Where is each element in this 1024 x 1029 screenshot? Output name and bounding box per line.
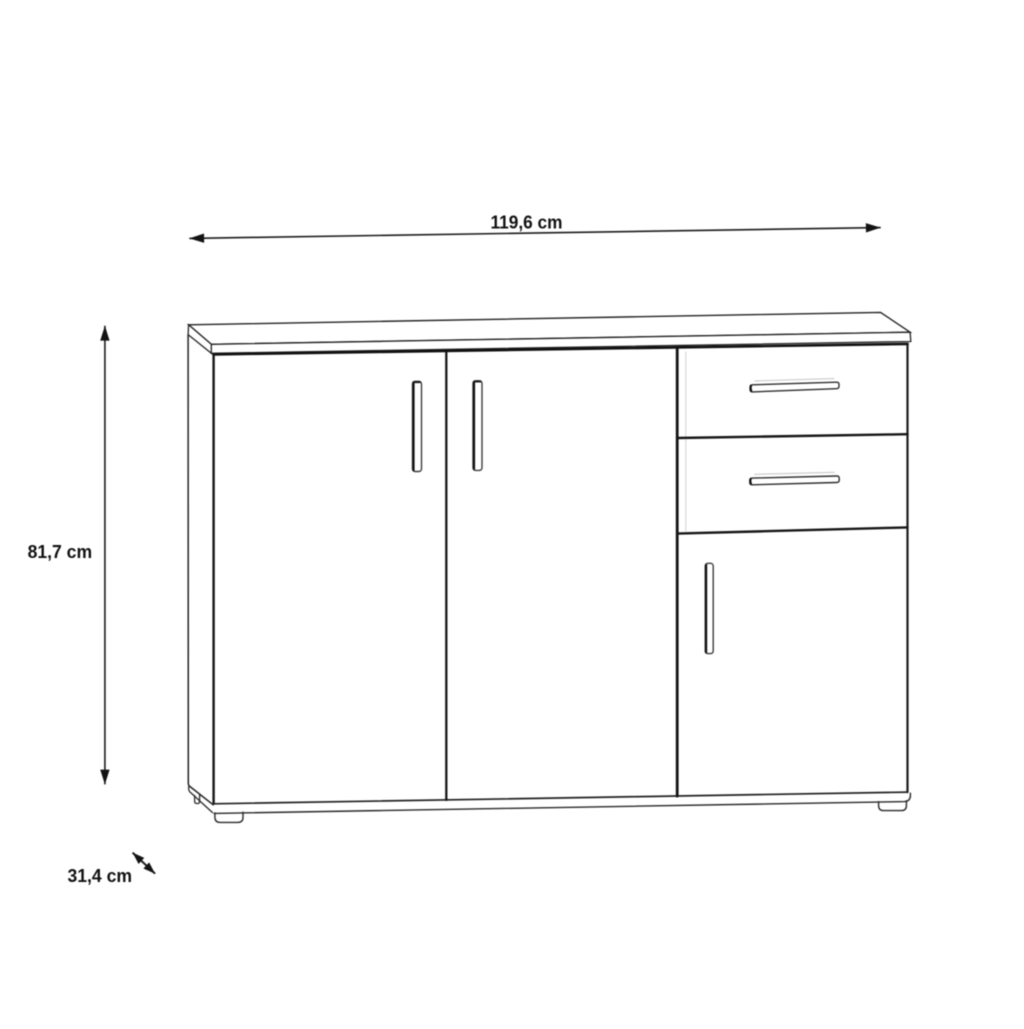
svg-text:119,6 cm: 119,6 cm [491, 212, 563, 232]
svg-text:81,7 cm: 81,7 cm [28, 542, 93, 562]
svg-text:31,4 cm: 31,4 cm [68, 866, 133, 886]
